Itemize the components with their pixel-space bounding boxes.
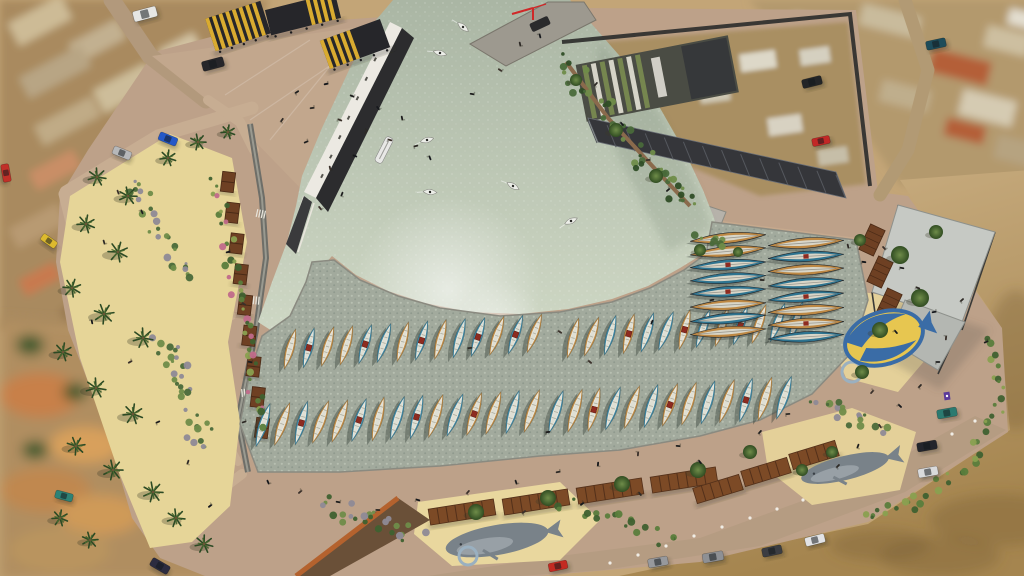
shrub [719,243,726,250]
shrub [863,511,870,518]
shrub [260,394,266,400]
shrub [339,519,346,526]
shrub [650,150,655,155]
tree [570,74,582,86]
shrub [681,186,685,190]
shrub [916,500,924,508]
tree [540,490,556,506]
shrub [178,393,185,400]
road-bollard [720,525,723,528]
car-glass [709,553,717,561]
shrub [621,137,626,142]
shrub [923,493,929,499]
road-bollard [664,544,667,547]
shrub [639,154,642,157]
car-glass [768,547,776,555]
shrub [171,265,177,271]
shrub [204,420,210,426]
shrub [884,424,892,432]
shrub [638,161,644,167]
shrub [624,524,627,527]
engine-box [725,262,731,267]
shrub [179,374,184,379]
shrub [600,115,606,121]
shrub [615,510,623,518]
shrub [248,378,252,382]
shrub [561,52,565,56]
shrub [320,502,326,508]
road-bollard [636,553,639,556]
shrub [259,424,266,431]
shrub [983,428,990,435]
shrub [642,524,649,531]
shrub [910,493,917,500]
tree [854,234,866,246]
shrub [894,506,899,511]
shrub [872,423,880,431]
shrub [935,487,943,495]
shrub [136,197,142,203]
shrub [875,508,880,513]
road-bollard [950,432,953,435]
tree [694,244,706,256]
shrub [194,425,202,433]
shrub [627,126,635,134]
dune-shadow [830,529,930,561]
tree [911,289,929,307]
shrub [700,237,703,240]
tree [614,476,630,492]
engine-box [803,321,808,326]
shrub [628,518,636,526]
shrub [231,236,237,242]
shrub [164,233,170,239]
shrub [572,498,575,501]
shrub [221,262,229,270]
shrub [638,142,644,148]
shrub [382,519,389,526]
shrub [1001,386,1005,390]
stair-step [258,297,259,305]
shrub [834,414,841,421]
shrub [839,408,847,416]
shrub [168,354,175,361]
shrub [329,511,337,519]
shrub [375,525,382,532]
shrub [911,506,918,513]
tree [891,246,909,264]
shrub [157,340,165,348]
shrub [668,177,673,182]
shrub [405,522,411,528]
road-bollard [775,507,778,510]
shrub [224,203,229,208]
harbor-aerial-view: Aerial 3D rendering of a fishing harbor … [0,0,1024,576]
shrub [560,63,567,70]
shrub [182,266,188,272]
shrub [340,511,346,517]
shrub [235,264,242,271]
shrub [171,370,178,377]
shrub [348,500,355,507]
person [376,509,381,511]
shrub [133,180,136,183]
shrub [671,536,675,540]
shrub [946,480,951,485]
shrub [1001,411,1004,414]
shrub [239,297,245,303]
shrub [247,347,252,352]
shrub [569,89,577,97]
person [936,361,941,363]
car-glass [554,562,562,569]
shrub [562,70,566,74]
engine-box [803,254,808,259]
shrub [691,231,699,239]
shrub [219,210,223,214]
shrub [836,399,843,406]
shrub [238,280,243,285]
shrub [422,529,430,537]
shrub [242,331,247,336]
shrub [195,413,199,417]
shrub [884,502,891,509]
shrub [190,439,197,446]
shrub [224,219,229,224]
stair-step [253,296,254,304]
tree [929,225,943,239]
shrub [155,234,161,240]
shrub [857,422,865,430]
shrub [156,351,160,355]
shrub [148,207,153,212]
shrub [186,274,194,282]
shrub [984,420,987,423]
stair-step [256,296,257,304]
shrub [232,259,236,263]
shrub [690,194,695,199]
car-glass [943,409,951,417]
tree [733,247,743,257]
road-bollard [973,419,976,422]
shrub [227,275,231,279]
shrub [946,472,949,475]
shrub [148,230,152,234]
shrub [583,90,586,93]
shrub [655,526,660,531]
shrub [173,348,178,353]
shrub [961,468,969,476]
shrub [164,254,172,262]
shrub [171,360,174,363]
tree [468,504,484,520]
shrub [214,193,219,198]
shrub [247,368,254,375]
tree [872,322,888,338]
shrub [693,202,696,205]
engine-box [803,294,809,299]
shrub [361,512,369,520]
shrub [372,511,375,514]
shrub [228,291,235,298]
shrub [248,333,253,338]
shrub [605,513,610,518]
shrub [137,188,143,194]
shrub [156,227,160,231]
shrub [137,182,141,186]
shrub [353,517,357,521]
blurred-roof-patch [10,528,110,572]
shrub [327,494,332,499]
shrub [166,343,173,350]
shrub [992,352,999,359]
shrub [254,361,258,365]
engine-box [725,289,730,294]
road-bollard [608,561,611,564]
shrub [656,543,661,548]
shrub [678,191,685,198]
person [760,279,765,281]
car-glass [3,169,10,176]
shrub [198,438,204,444]
shrub [185,419,192,426]
road-bollard [801,498,804,501]
shrub [151,210,158,217]
shrub [902,498,910,506]
shrub [633,529,640,536]
shrub [584,510,591,517]
shrub [178,384,183,389]
shrub [857,417,863,423]
shrub [209,177,213,181]
shrub [219,222,223,226]
shrub [201,444,206,449]
tree [609,123,623,137]
shrub [605,101,611,107]
road-bollard [748,516,751,519]
blurred-roof-patch [16,335,44,355]
shrub [809,400,812,403]
shrub [257,408,265,416]
shrub [996,363,1001,368]
shrub [393,523,399,529]
shrub [813,400,818,405]
shrub [368,515,373,520]
shrub [163,361,170,368]
shrub [993,403,997,407]
shrub [396,532,404,540]
aerial-render-stage: Aerial 3D rendering of a fishing harbor … [0,0,1024,576]
shrub [665,195,672,202]
shrub [870,516,874,520]
shrub [184,389,191,396]
shrub [882,511,888,517]
tree [690,462,706,478]
shrub [972,456,978,462]
shrub [172,377,178,383]
tree [649,169,663,183]
shrub [599,98,604,103]
shrub [173,248,177,252]
road-bollard [692,534,695,537]
car-glass [924,468,932,476]
shrub [863,413,866,416]
accessible-parking-glyph [946,395,948,397]
car-glass [932,40,940,48]
shrub [970,439,977,446]
person [646,159,651,161]
shrub [241,307,244,310]
car-glass [923,442,931,450]
shrub [401,539,404,542]
shrub [389,530,394,535]
shrub [846,422,852,428]
shrub [856,412,861,417]
shrub [184,434,191,441]
shrub [675,182,682,189]
shrub [566,60,572,66]
tree [855,365,869,379]
shrub [348,514,353,519]
shrub [998,395,1005,402]
shrub [583,67,590,74]
shrub [219,243,226,250]
shrub [239,288,244,293]
shrub [210,427,214,431]
shrub [255,398,261,404]
shrub [250,339,256,345]
shrub [557,507,562,512]
tree [796,464,808,476]
shrub [215,185,218,188]
blurred-roof-patch [22,441,48,459]
shrub [249,351,256,358]
shrub [153,218,160,225]
shrub [174,355,179,360]
shrub [826,403,829,406]
tree [743,445,757,459]
shrub [148,191,153,196]
shrub [183,408,187,412]
car-glass [654,558,662,566]
shrub [593,515,600,522]
shrub [633,165,639,171]
tree [826,446,838,458]
shrub [363,519,368,524]
shrub [989,414,994,419]
shrub [681,198,685,202]
shrub [997,380,1000,383]
stair-step [242,389,243,397]
shrub [248,323,254,329]
shrub [184,362,192,370]
shrub [246,390,250,394]
